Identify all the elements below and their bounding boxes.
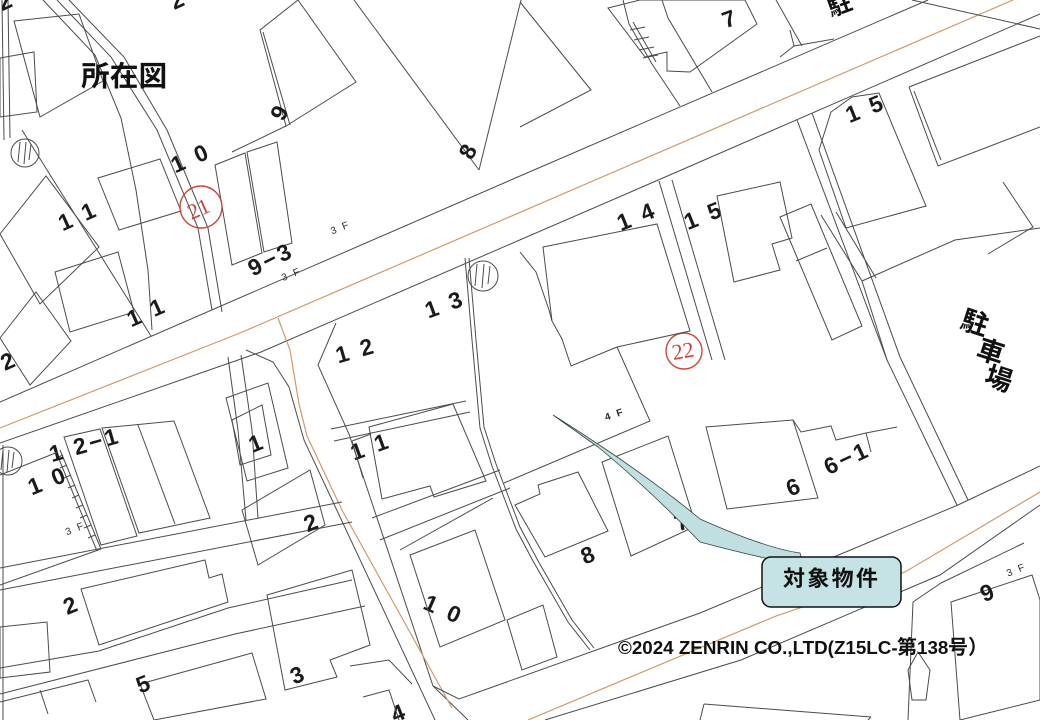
svg-text:138: 138 — [917, 637, 948, 658]
svg-text:22: 22 — [670, 336, 696, 364]
svg-text:©2024 ZENRIN CO.,LTD(Z15LC-: ©2024 ZENRIN CO.,LTD(Z15LC- — [618, 637, 898, 658]
